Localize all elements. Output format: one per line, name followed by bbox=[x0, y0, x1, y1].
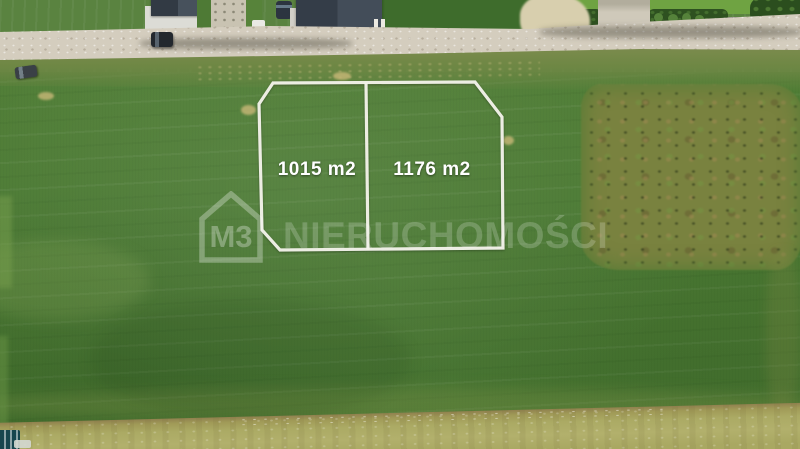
watermark-logo-text: M3 bbox=[209, 219, 252, 254]
plot-area-label-left: 1015 m2 bbox=[278, 159, 357, 181]
aerial-photo: 1015 m2 1176 m2 M3 NIERUCHOMOŚCI bbox=[0, 0, 800, 449]
watermark-brand-text: NIERUCHOMOŚCI bbox=[283, 217, 608, 254]
m3-house-logo-icon: M3 bbox=[199, 191, 263, 263]
plot-area-label-right: 1176 m2 bbox=[393, 159, 470, 181]
